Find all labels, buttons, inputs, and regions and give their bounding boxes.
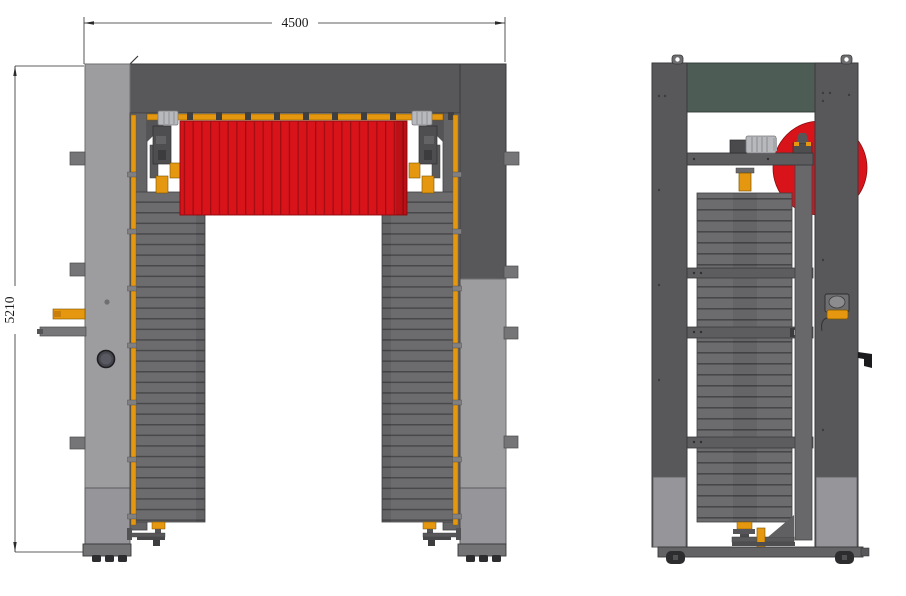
motor-body xyxy=(746,136,776,153)
sensor-nub xyxy=(128,172,137,177)
sensor-nub xyxy=(128,286,137,291)
brush-shaft-hub xyxy=(739,173,751,191)
bolt-dot xyxy=(822,92,824,94)
sensor-bar xyxy=(40,327,86,336)
mount-tab xyxy=(504,327,518,339)
top-crossbeam xyxy=(130,64,506,113)
shading-overlay xyxy=(733,193,757,522)
arrowhead xyxy=(13,542,16,552)
wheel-hub xyxy=(673,555,678,560)
brush-hub-left xyxy=(170,163,181,178)
brush-texture xyxy=(133,192,205,522)
base-right xyxy=(458,544,506,562)
eye-hole xyxy=(675,57,679,61)
device-lens xyxy=(829,296,845,308)
top-brush-stripes xyxy=(180,121,407,215)
bolt-dot xyxy=(693,441,695,443)
gearbox xyxy=(730,140,747,153)
flag-bracket xyxy=(858,352,872,368)
sensor-nub xyxy=(128,514,137,519)
arm-pin xyxy=(428,540,435,546)
bolt-dot xyxy=(700,331,702,333)
bearing-flange xyxy=(733,529,755,534)
rail-bracket xyxy=(361,112,367,120)
main-beam xyxy=(687,153,813,165)
support-arm xyxy=(423,537,451,540)
bottom-foot xyxy=(732,542,795,546)
wheel xyxy=(118,555,127,562)
arrowhead xyxy=(495,21,505,24)
wheel xyxy=(92,555,101,562)
bolt-dot xyxy=(658,95,660,97)
sensor-nub xyxy=(128,343,137,348)
rail-bracket xyxy=(274,112,280,120)
shading-overlay xyxy=(396,121,407,215)
bolt-dot xyxy=(664,95,666,97)
clamp-pad xyxy=(806,142,811,146)
gearbox-detail xyxy=(424,136,434,144)
support-arm xyxy=(423,533,457,537)
device-orange-cover xyxy=(827,310,848,319)
shading-overlay xyxy=(196,192,205,522)
sensor-nub xyxy=(453,343,462,348)
base-tab xyxy=(861,548,869,556)
orange-bracket-tip xyxy=(53,311,61,317)
shading-overlay xyxy=(382,192,391,522)
cross-beam xyxy=(687,268,813,278)
side-left-column xyxy=(652,63,687,547)
base-left xyxy=(83,544,131,562)
drawing-canvas: 4500 5210 xyxy=(0,0,906,596)
left-column-bottom-panel xyxy=(85,488,130,544)
sensor-nub xyxy=(128,229,137,234)
support-arm xyxy=(131,533,165,537)
bolt-dot xyxy=(822,429,824,431)
sensor-nub xyxy=(128,400,137,405)
bolt-dot xyxy=(693,331,695,333)
right-column-lower xyxy=(460,279,506,488)
rail-bracket xyxy=(303,112,309,120)
arrowhead xyxy=(84,21,94,24)
top-panel xyxy=(687,63,815,112)
motor-cap xyxy=(773,138,777,151)
base-beam xyxy=(658,547,863,557)
side-base xyxy=(658,547,869,564)
rail-bracket xyxy=(390,112,396,120)
bottom-cap xyxy=(737,522,752,529)
side-left-column-bottom-panel xyxy=(653,477,686,547)
lifting-eye xyxy=(841,55,852,64)
front-view xyxy=(37,56,519,562)
arm-end-block xyxy=(456,528,461,540)
mount-tab xyxy=(70,437,85,449)
cross-beam xyxy=(687,437,813,448)
bolt-dot xyxy=(693,158,695,160)
base-plate xyxy=(83,544,131,556)
bolt-dot xyxy=(658,189,660,191)
sensor-nub xyxy=(453,400,462,405)
bolt-dot xyxy=(700,272,702,274)
base-plate xyxy=(458,544,506,556)
hub-flange xyxy=(736,168,754,173)
width-dimension-label: 4500 xyxy=(282,15,309,30)
sensor-bar-tip xyxy=(37,329,43,334)
arrowhead xyxy=(13,66,16,76)
mount-tab xyxy=(504,436,518,448)
width-dimension: 4500 xyxy=(84,15,505,64)
gearbox-detail xyxy=(158,150,166,160)
side-brush-left xyxy=(133,192,205,522)
sensor-nub xyxy=(453,286,462,291)
sensor-nub xyxy=(453,457,462,462)
bottom-cap xyxy=(152,522,165,529)
clamp-pad xyxy=(794,142,799,146)
sensor-nub xyxy=(453,229,462,234)
side-brush-top-hub-right xyxy=(422,176,434,193)
sensor-nub xyxy=(128,457,137,462)
carriage-post xyxy=(795,165,812,540)
wheel xyxy=(105,555,114,562)
eye-hole xyxy=(844,57,848,61)
side-right-column-bottom-panel xyxy=(816,477,857,547)
wheel xyxy=(479,555,488,562)
side-brush-right xyxy=(382,192,456,522)
bolt-dot xyxy=(658,379,660,381)
mount-tab xyxy=(70,152,85,165)
side-view xyxy=(652,55,872,564)
bottom-cap xyxy=(423,522,436,529)
bolt-dot xyxy=(700,441,702,443)
height-dimension-label: 5210 xyxy=(2,296,17,323)
wheel xyxy=(466,555,475,562)
bolt-dot xyxy=(829,92,831,94)
wheel-hub xyxy=(842,555,847,560)
bolt-dot xyxy=(822,259,824,261)
wheel xyxy=(492,555,501,562)
mount-tab xyxy=(504,266,518,278)
sensor-nub xyxy=(453,514,462,519)
bolt-dot xyxy=(767,158,769,160)
bolt-dot xyxy=(658,284,660,286)
top-brush xyxy=(180,121,407,215)
lifting-eye xyxy=(672,55,683,64)
side-brush-stack xyxy=(697,193,792,522)
mount-tab xyxy=(504,152,519,165)
right-column-upper xyxy=(460,64,506,279)
rail-bracket xyxy=(245,112,251,120)
motor-body xyxy=(158,111,178,125)
bolt-dot xyxy=(848,94,850,96)
brush-texture xyxy=(382,192,456,522)
rail-bracket xyxy=(187,112,193,120)
gearbox-detail xyxy=(156,136,166,144)
mount-tab xyxy=(70,263,85,276)
side-brush-top-hub-left xyxy=(156,176,168,193)
side-brush-motor xyxy=(730,136,777,153)
left-column xyxy=(85,64,130,488)
arm-end-block xyxy=(127,528,132,540)
right-column-bottom-panel xyxy=(460,488,506,544)
rail-bracket xyxy=(216,112,222,120)
brush-hub-right xyxy=(409,163,420,178)
support-arm xyxy=(137,537,165,540)
bolt-dot xyxy=(693,272,695,274)
arm-pin xyxy=(153,540,160,546)
technical-drawing-page: 4500 5210 xyxy=(0,0,906,596)
bolt-dot xyxy=(822,100,824,102)
gearbox-detail xyxy=(424,150,432,160)
rail-bracket xyxy=(332,112,338,120)
inspection-port-inner xyxy=(101,354,112,365)
bolt-dot xyxy=(104,299,109,304)
sensor-nub xyxy=(453,172,462,177)
